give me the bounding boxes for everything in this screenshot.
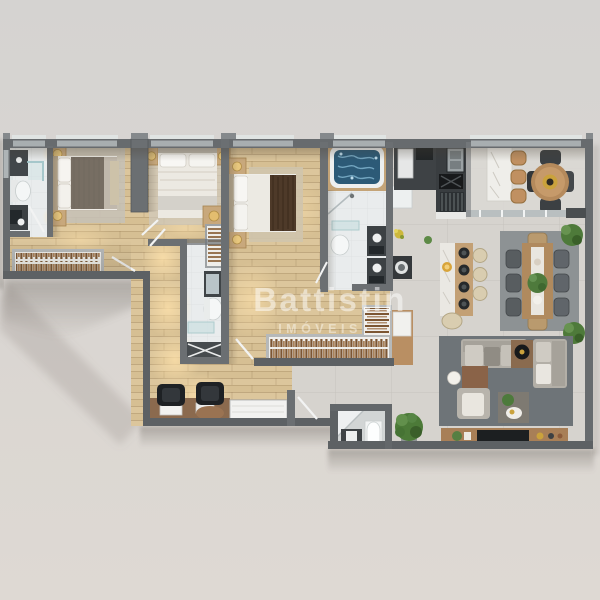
- svg-text:IMÓVEIS: IMÓVEIS: [278, 321, 362, 336]
- svg-text:Battistin: Battistin: [253, 281, 407, 318]
